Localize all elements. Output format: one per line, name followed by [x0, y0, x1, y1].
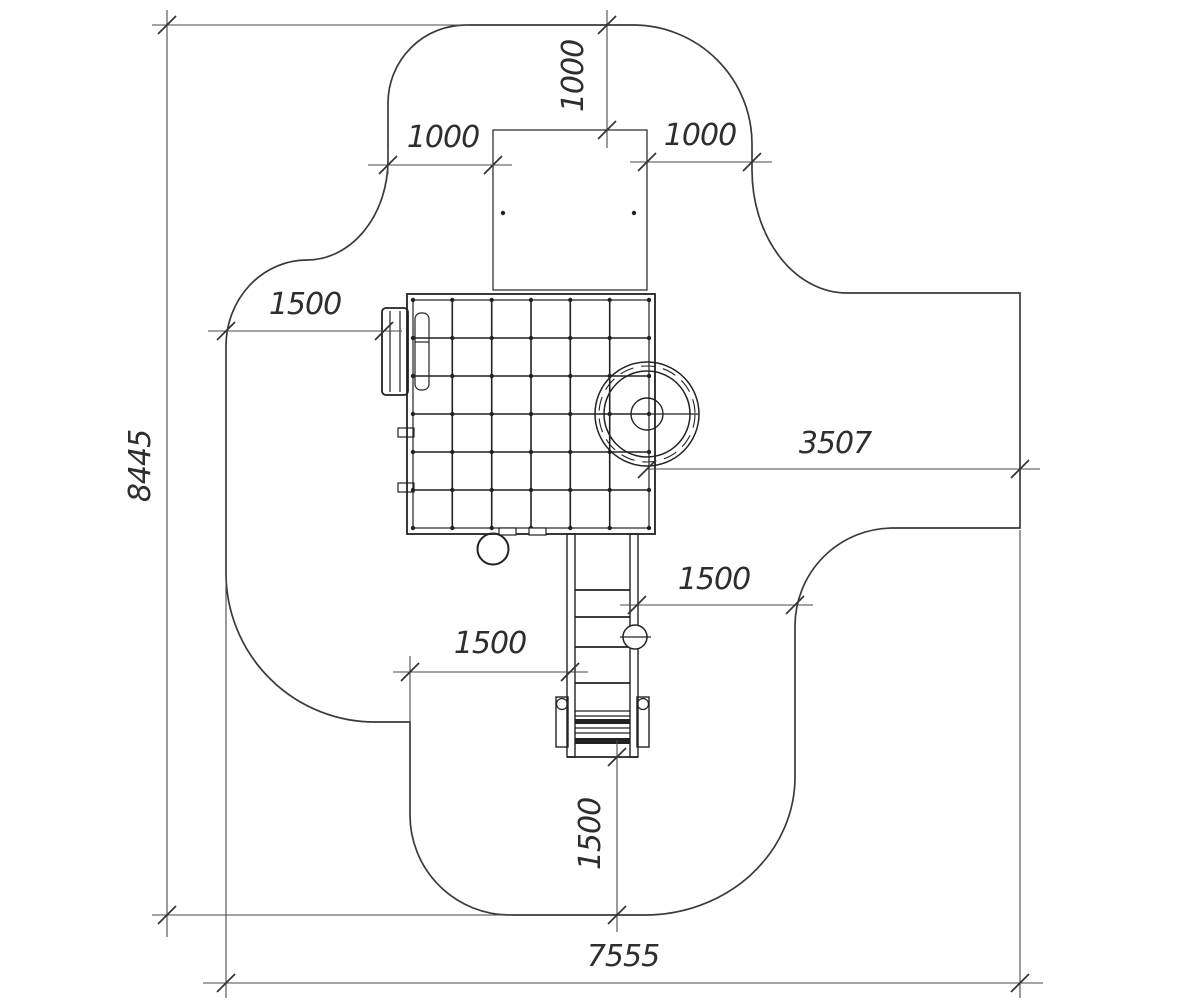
dim-label-bottom-offset: 1500	[573, 798, 608, 870]
grid-node-dot	[568, 450, 572, 454]
safety-zone-outline	[226, 25, 1020, 915]
grid-node-dot	[529, 412, 533, 416]
grid-node-dot	[490, 298, 494, 302]
dim-label-overall-width: 7555	[587, 939, 659, 974]
dim-label-right-offset: 3507	[799, 426, 872, 461]
grid-node-dot	[490, 450, 494, 454]
grid-node-dot	[411, 298, 415, 302]
grid-node-dot	[450, 374, 454, 378]
grid-node-dot	[568, 374, 572, 378]
dim-label-top-right: 1000	[664, 118, 736, 153]
grid-node-dot	[608, 336, 612, 340]
safety-zone-plan-drawing: 8445 7555 1000 1000 1000 1500 3507 1500 …	[0, 0, 1191, 1000]
grid-node-dot	[568, 336, 572, 340]
side-panel-outer	[382, 308, 408, 395]
grid-node-dot	[647, 450, 651, 454]
top-structure-outline	[493, 130, 647, 290]
grid-node-dot	[411, 450, 415, 454]
grid-node-dot	[608, 298, 612, 302]
step-tread	[575, 719, 630, 724]
pole-circle	[478, 534, 509, 565]
grid-node-dot	[568, 526, 572, 530]
grid-node-dot	[568, 298, 572, 302]
platform-structure	[398, 294, 655, 535]
ladder-structure	[556, 534, 651, 757]
anchor-dot	[632, 211, 636, 215]
dimension-labels: 8445 7555 1000 1000 1000 1500 3507 1500 …	[123, 40, 872, 974]
dim-label-top-vertical: 1000	[556, 40, 591, 112]
bottom-edge-plate	[499, 528, 516, 535]
dim-label-overall-height: 8445	[123, 430, 158, 502]
anchor-dot	[501, 211, 505, 215]
steps-block	[556, 697, 649, 757]
grid-node-dot	[529, 336, 533, 340]
grid-node-dot	[529, 488, 533, 492]
grid-node-dot	[647, 526, 651, 530]
grid-node-dot	[450, 298, 454, 302]
technical-drawing-canvas: 8445 7555 1000 1000 1000 1500 3507 1500 …	[0, 0, 1191, 1000]
grid-node-dot	[608, 526, 612, 530]
grid-node-dot	[529, 374, 533, 378]
grid-node-dot	[490, 412, 494, 416]
grid-node-dot	[450, 412, 454, 416]
grid-node-dot	[490, 374, 494, 378]
grid-node-dot	[568, 488, 572, 492]
grid-node-dot	[647, 374, 651, 378]
post-cap	[638, 699, 649, 710]
grid-node-dot	[490, 488, 494, 492]
step-tread	[575, 738, 630, 744]
dim-label-top-left: 1000	[407, 120, 479, 155]
grid-node-dot	[529, 450, 533, 454]
top-structure-rect	[493, 130, 647, 290]
grid-node-dot	[647, 336, 651, 340]
grid-node-dot	[450, 450, 454, 454]
grid-node-dot	[608, 412, 612, 416]
dim-label-left-offset: 1500	[269, 287, 341, 322]
platform-grid	[411, 298, 651, 530]
steps-left-post	[556, 697, 568, 747]
grid-node-dot	[647, 298, 651, 302]
steps-right-post	[637, 697, 649, 747]
left-edge-tab	[398, 428, 414, 437]
bottom-edge-plate	[529, 528, 546, 535]
grid-node-dot	[647, 488, 651, 492]
grid-node-dot	[450, 336, 454, 340]
grid-node-dot	[450, 526, 454, 530]
grid-node-dot	[450, 488, 454, 492]
grid-node-dot	[411, 526, 415, 530]
dim-label-ladder-left: 1500	[454, 626, 526, 661]
dim-label-ladder-right: 1500	[678, 562, 750, 597]
post-cap	[557, 699, 568, 710]
grid-node-dot	[529, 298, 533, 302]
grid-node-dot	[411, 412, 415, 416]
grid-node-dot	[490, 526, 494, 530]
side-panel-inner	[415, 313, 429, 390]
side-panel	[382, 308, 429, 395]
grid-node-dot	[568, 412, 572, 416]
grid-node-dot	[490, 336, 494, 340]
grid-node-dot	[608, 488, 612, 492]
